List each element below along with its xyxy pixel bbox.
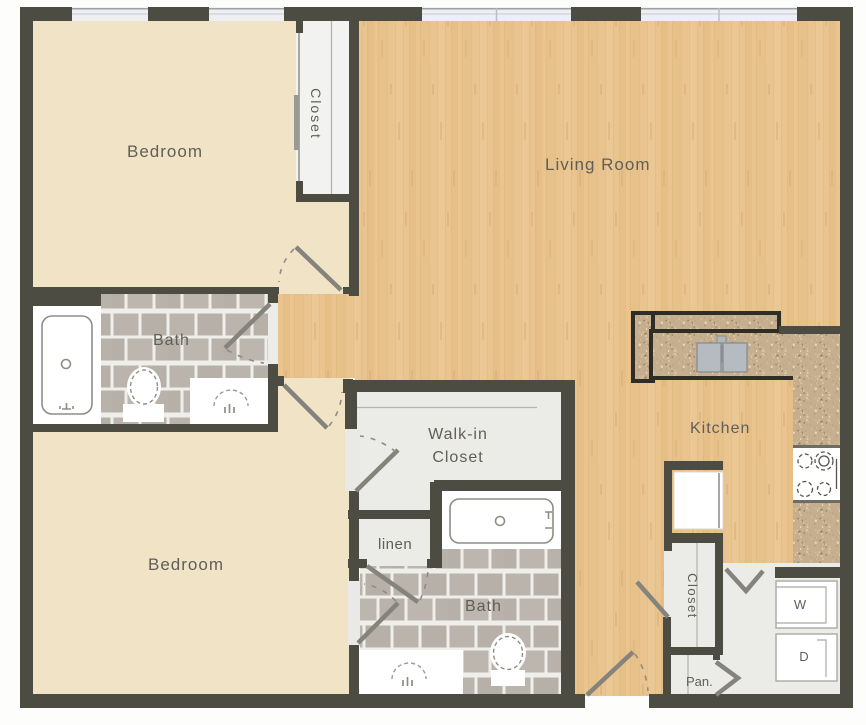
svg-text:Living Room: Living Room — [545, 155, 651, 174]
svg-text:W: W — [794, 597, 807, 612]
svg-text:D: D — [799, 649, 808, 664]
svg-text:Walk-in: Walk-in — [428, 426, 488, 443]
svg-text:Pan.: Pan. — [686, 674, 713, 689]
svg-text:Kitchen: Kitchen — [690, 420, 750, 437]
svg-text:Closet: Closet — [685, 573, 700, 619]
svg-text:linen: linen — [378, 536, 412, 553]
svg-text:Bedroom: Bedroom — [148, 555, 224, 574]
svg-text:Bath: Bath — [153, 332, 190, 349]
svg-text:Bedroom: Bedroom — [127, 142, 203, 161]
svg-text:Closet: Closet — [308, 88, 324, 140]
svg-text:Bath: Bath — [465, 598, 502, 615]
svg-text:Closet: Closet — [432, 449, 483, 466]
